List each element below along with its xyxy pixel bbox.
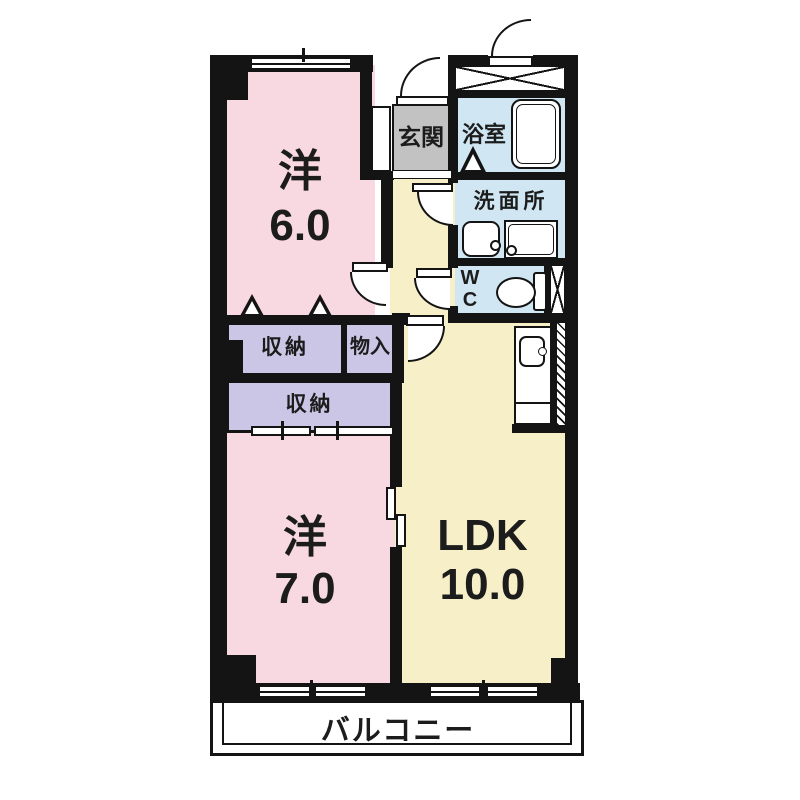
window xyxy=(486,685,539,698)
wall xyxy=(227,315,397,325)
washroom-door-leaf xyxy=(412,183,453,192)
wall xyxy=(381,180,393,268)
storage-sliding-panel xyxy=(314,426,394,436)
floor-plan: 洋 6.0 洋 7.0 LDK 10.0 玄関 浴室 洗面所 W C 収納 物入… xyxy=(0,0,800,800)
track-tick xyxy=(281,421,284,440)
counter-edge xyxy=(516,402,550,404)
trunk-box xyxy=(454,65,566,92)
label-washroom: 洗面所 xyxy=(456,191,566,212)
label-storage-upper: 収納 xyxy=(227,337,343,358)
sliding-door-panel xyxy=(386,487,396,520)
label-entrance: 玄関 xyxy=(392,126,450,149)
toilet-bowl-icon xyxy=(496,277,536,308)
window xyxy=(258,685,311,698)
track-tick xyxy=(336,421,339,440)
wall xyxy=(565,55,578,700)
column xyxy=(210,655,256,700)
window-tick xyxy=(302,48,305,62)
label-wc-w: W xyxy=(458,268,482,288)
window xyxy=(314,685,367,698)
window-tick xyxy=(482,680,485,702)
entrance-step xyxy=(392,170,452,179)
label-bathroom: 浴室 xyxy=(455,124,513,146)
pipe-space xyxy=(556,322,566,426)
meter-box xyxy=(549,264,566,315)
column xyxy=(210,55,248,100)
wall xyxy=(390,432,402,487)
column xyxy=(551,658,578,700)
wc-door-leaf xyxy=(416,268,452,278)
window xyxy=(250,57,352,70)
label-western7-name: 洋 xyxy=(225,516,385,560)
label-western6-area: 6.0 xyxy=(220,204,380,248)
label-wc-c: C xyxy=(458,290,482,310)
label-storage-lower: 収納 xyxy=(227,394,392,415)
window-tick xyxy=(310,680,313,702)
entrance-door-leaf xyxy=(396,96,449,106)
wall xyxy=(448,172,565,180)
drain-icon xyxy=(506,245,517,256)
wall xyxy=(227,373,398,383)
window xyxy=(429,685,481,698)
label-western6-name: 洋 xyxy=(220,150,380,194)
label-western7-area: 7.0 xyxy=(225,567,385,611)
kitchen-faucet-icon xyxy=(538,347,547,356)
washbasin-icon xyxy=(462,221,500,257)
washbasin-faucet-icon xyxy=(490,240,501,251)
label-ldk-name: LDK xyxy=(400,514,565,558)
label-closet: 物入 xyxy=(345,337,395,357)
entrance-door-arc xyxy=(400,57,440,96)
trunk-door-arc xyxy=(491,19,531,56)
ldk-door-leaf xyxy=(406,315,444,326)
western6-door-leaf xyxy=(352,262,388,272)
label-ldk-area: 10.0 xyxy=(400,563,565,607)
label-balcony: バルコニー xyxy=(212,717,584,746)
bathtub-inner xyxy=(516,104,556,164)
